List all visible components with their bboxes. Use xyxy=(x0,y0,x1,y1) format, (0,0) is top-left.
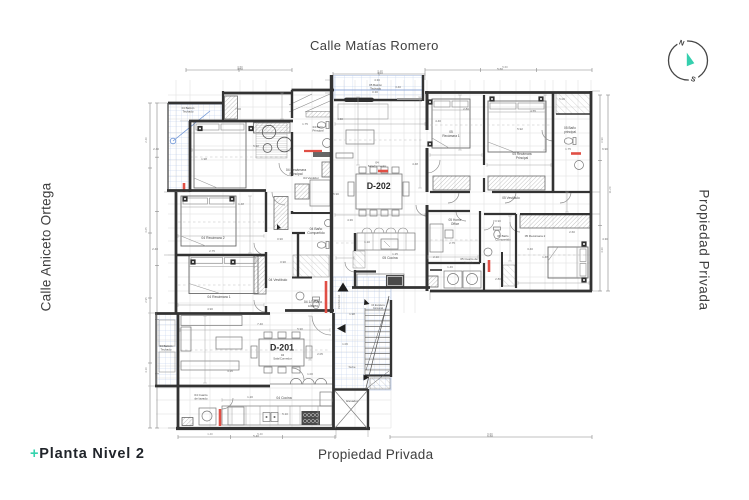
svg-text:0.90: 0.90 xyxy=(280,260,286,264)
svg-text:Elevador: Elevador xyxy=(346,399,357,403)
svg-text:6.90: 6.90 xyxy=(602,147,608,151)
svg-text:2.40: 2.40 xyxy=(152,247,158,251)
svg-text:4.48: 4.48 xyxy=(412,162,418,166)
svg-text:D-202: D-202 xyxy=(367,181,391,191)
svg-text:05 Recámara 2: 05 Recámara 2 xyxy=(525,234,546,238)
svg-text:1.10: 1.10 xyxy=(364,240,370,244)
svg-text:4.90: 4.90 xyxy=(207,307,213,311)
svg-text:1.40: 1.40 xyxy=(207,432,213,436)
svg-text:1.20: 1.20 xyxy=(247,395,253,399)
svg-text:0.90: 0.90 xyxy=(495,219,501,223)
svg-text:7.40: 7.40 xyxy=(257,322,263,326)
svg-text:5.92: 5.92 xyxy=(253,144,259,148)
svg-text:3.40: 3.40 xyxy=(527,247,533,251)
svg-text:3.50: 3.50 xyxy=(237,67,243,71)
svg-text:Techado: Techado xyxy=(161,348,172,352)
svg-text:Techado: Techado xyxy=(183,110,194,114)
svg-text:5.90: 5.90 xyxy=(333,192,339,196)
svg-text:de lavado: de lavado xyxy=(194,397,207,401)
svg-text:2.75: 2.75 xyxy=(209,249,215,253)
svg-text:5.90: 5.90 xyxy=(297,327,303,331)
svg-text:04 Recámara 2: 04 Recámara 2 xyxy=(201,236,224,240)
svg-text:6.90: 6.90 xyxy=(600,137,604,143)
svg-text:4.26: 4.26 xyxy=(227,369,233,373)
svg-text:2.80: 2.80 xyxy=(463,107,469,111)
svg-text:4.30: 4.30 xyxy=(600,247,604,253)
svg-text:04 Recámara 1: 04 Recámara 1 xyxy=(207,295,230,299)
svg-text:2.05: 2.05 xyxy=(317,352,323,356)
svg-text:Sala/Comedor: Sala/Comedor xyxy=(368,164,387,168)
svg-text:Principal: Principal xyxy=(289,172,302,176)
svg-text:2.40: 2.40 xyxy=(144,137,148,143)
svg-text:Principal: Principal xyxy=(312,129,323,133)
svg-text:Office: Office xyxy=(451,222,459,226)
svg-text:3.65: 3.65 xyxy=(144,227,148,233)
svg-text:5.40: 5.40 xyxy=(253,434,259,438)
svg-text:0.30: 0.30 xyxy=(372,90,378,94)
svg-text:principal: principal xyxy=(564,130,576,134)
svg-text:11.20: 11.20 xyxy=(608,186,612,193)
svg-text:05 Vestíbulo: 05 Vestíbulo xyxy=(502,196,520,200)
svg-text:Comunal: Comunal xyxy=(373,307,383,310)
svg-text:Compartido: Compartido xyxy=(307,231,325,235)
svg-text:05 Cocina: 05 Cocina xyxy=(382,256,397,260)
svg-text:1.75: 1.75 xyxy=(565,147,571,151)
svg-text:5.00: 5.00 xyxy=(559,97,565,101)
svg-text:0.90: 0.90 xyxy=(277,237,283,241)
svg-text:4.36: 4.36 xyxy=(347,218,353,222)
svg-text:Compartido: Compartido xyxy=(495,238,511,242)
svg-text:1.98: 1.98 xyxy=(349,312,355,316)
svg-text:c/aseo: c/aseo xyxy=(308,304,318,308)
svg-text:1.98: 1.98 xyxy=(201,157,207,161)
svg-text:1.00: 1.00 xyxy=(307,372,313,376)
svg-text:5.92: 5.92 xyxy=(517,127,523,131)
svg-text:4.30: 4.30 xyxy=(602,237,608,241)
svg-text:4.30: 4.30 xyxy=(337,117,343,121)
svg-text:1.25: 1.25 xyxy=(392,252,398,256)
svg-text:1.48: 1.48 xyxy=(238,202,244,206)
svg-text:4.30: 4.30 xyxy=(374,78,380,82)
svg-text:2.75: 2.75 xyxy=(449,241,455,245)
svg-text:5.60: 5.60 xyxy=(497,67,503,71)
svg-text:Principal: Principal xyxy=(516,156,529,160)
svg-text:Sala/Comedor: Sala/Comedor xyxy=(273,357,292,361)
svg-text:04 Vestidor: 04 Vestidor xyxy=(303,176,318,180)
svg-text:Recámara 1: Recámara 1 xyxy=(442,134,460,138)
svg-text:2.40: 2.40 xyxy=(153,147,159,151)
svg-text:D-201: D-201 xyxy=(270,343,294,353)
svg-text:04 Vestíbulo: 04 Vestíbulo xyxy=(269,278,288,282)
svg-text:1.46: 1.46 xyxy=(542,255,548,259)
svg-text:04 Cocina: 04 Cocina xyxy=(276,396,291,400)
svg-text:5.10: 5.10 xyxy=(282,412,288,416)
svg-text:4.10: 4.10 xyxy=(144,367,148,373)
svg-text:MEDIANERA: MEDIANERA xyxy=(338,294,341,309)
svg-text:5.60: 5.60 xyxy=(502,65,508,69)
svg-text:lavado: lavado xyxy=(465,261,474,265)
svg-text:Sube: Sube xyxy=(348,365,355,369)
svg-text:1.75: 1.75 xyxy=(302,122,308,126)
svg-text:2.60: 2.60 xyxy=(569,230,575,234)
svg-text:1.46: 1.46 xyxy=(447,265,453,269)
svg-text:2.95: 2.95 xyxy=(144,297,148,303)
svg-text:6.60: 6.60 xyxy=(487,434,493,438)
svg-text:3.10: 3.10 xyxy=(377,71,383,75)
svg-text:4.55: 4.55 xyxy=(530,109,536,113)
svg-text:1.06: 1.06 xyxy=(342,342,348,346)
svg-text:7.00: 7.00 xyxy=(235,107,241,111)
svg-text:2.80: 2.80 xyxy=(495,277,501,281)
svg-text:3.40: 3.40 xyxy=(395,85,401,89)
svg-text:4.40: 4.40 xyxy=(435,119,441,123)
